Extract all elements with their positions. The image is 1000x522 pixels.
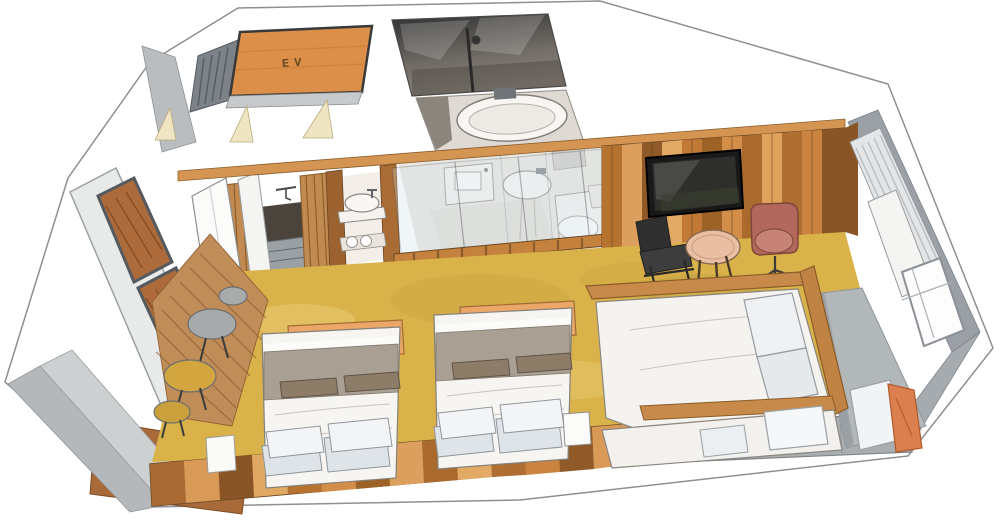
shower-room [392,14,566,96]
round-basin [345,194,379,212]
bed-1 [262,320,404,488]
sofa-pillow [764,406,828,450]
ev-label: EV [282,56,307,71]
shower-head [472,36,481,45]
towel-roll [347,237,358,248]
nightstand-box [563,412,591,446]
stool-gray [188,309,236,339]
stool-gray [219,287,247,305]
floorplan-svg: EV [0,0,1000,522]
sofa-pillow [700,425,748,457]
stool-mustard [164,360,216,392]
bolster [516,353,572,373]
pillow [438,407,496,439]
bath-faucet [494,87,517,100]
daybed-sofa [586,266,848,468]
bed-2 [434,301,576,469]
floorplan-illustration: EV [0,0,1000,522]
pillow [500,399,564,433]
wall-tv [646,150,743,217]
bolster [280,378,338,398]
towel-roll [361,236,372,247]
bolster [344,372,400,392]
pillow [328,418,392,452]
vanity-nook [326,164,400,272]
stool-mustard [154,401,190,423]
pillow [266,426,324,458]
white-cube [206,435,236,473]
bolster [452,359,510,379]
